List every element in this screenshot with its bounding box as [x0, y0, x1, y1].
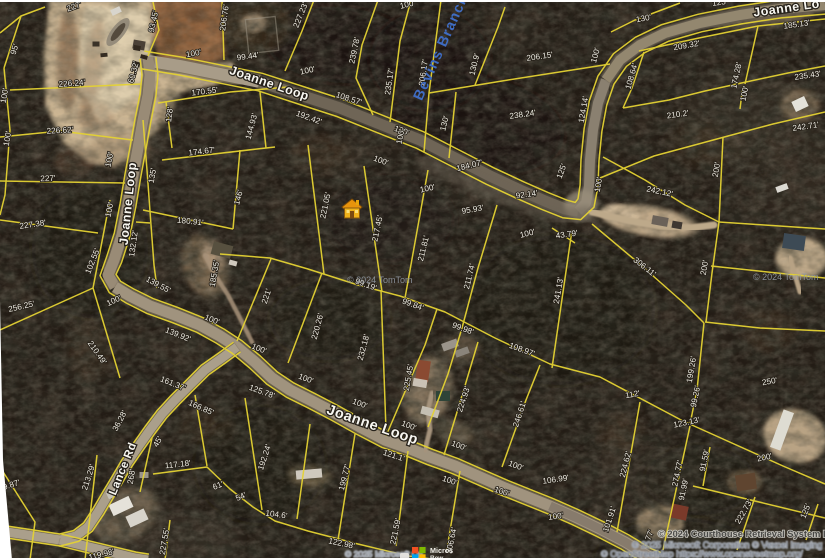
svg-text:© 2024 TomTom: © 2024 TomTom	[753, 272, 819, 282]
svg-text:© 2024 TomTom: © 2024 TomTom	[347, 275, 413, 285]
svg-text:© 2024 Courthouse Retrieval Sy: © 2024 Courthouse Retrieval System Inc	[658, 529, 825, 539]
svg-text:© OpenStreetMap https://www.op: © OpenStreetMap https://www.openstreetma…	[601, 549, 803, 559]
svg-text:226.62': 226.62'	[46, 125, 73, 135]
svg-text:226.24': 226.24'	[58, 78, 86, 89]
svg-text:Micros: Micros	[430, 546, 453, 555]
svg-text:© 2025 Microsoft Co: © 2025 Microsoft Co	[345, 549, 423, 559]
svg-text:227': 227'	[40, 174, 56, 184]
